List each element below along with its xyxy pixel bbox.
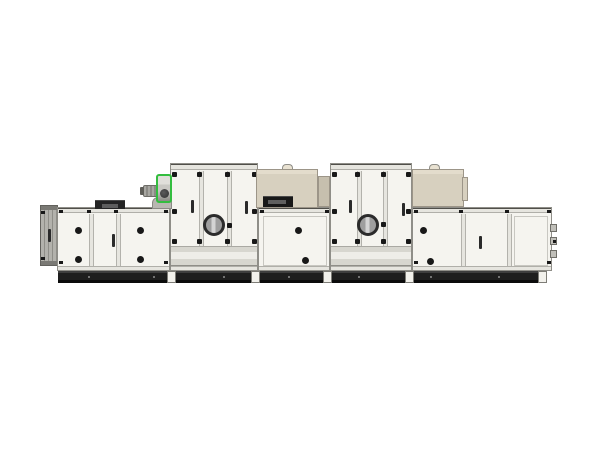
base-bolt (88, 276, 90, 278)
section-5-top-frame (413, 208, 551, 213)
door-knob (295, 227, 302, 234)
louver-top-flange (41, 206, 57, 210)
fan-motor-end-cap (140, 187, 144, 195)
porthole-side-bracket (227, 223, 232, 228)
door-handle (402, 203, 405, 216)
corner-bracket (172, 209, 177, 214)
door-knob (75, 227, 82, 234)
hood-vent-slot (102, 204, 118, 208)
beige-control-box-left (256, 169, 318, 208)
base-bottom-edge (58, 280, 544, 283)
corner-bracket (197, 239, 202, 244)
exhaust-hood (95, 200, 125, 209)
corner-bracket (172, 239, 177, 244)
corner-bracket (381, 239, 386, 244)
corner-bracket (332, 172, 337, 177)
inspection-porthole (203, 214, 225, 236)
corner-bracket (355, 239, 360, 244)
corner-bracket (406, 239, 411, 244)
door-knob (75, 256, 82, 263)
box-vent-slot-inner (268, 200, 286, 204)
hinge-tab (550, 250, 557, 258)
corner-bracket (406, 209, 411, 214)
corner-bracket (459, 210, 463, 213)
section-4-kick-band (331, 246, 411, 266)
inspection-porthole (357, 214, 379, 236)
corner-bracket (381, 172, 386, 177)
corner-bracket (332, 239, 337, 244)
door-knob (302, 257, 309, 264)
door-handle (479, 236, 482, 249)
hinge-tab (550, 224, 557, 232)
louver-handle (48, 229, 51, 242)
door-panel-outline (514, 216, 548, 266)
corner-bracket (332, 209, 337, 214)
section-3-low-cabinet (258, 207, 330, 271)
corner-bracket (59, 210, 63, 213)
door-frame-post (507, 214, 512, 266)
door-frame-post (89, 214, 94, 266)
section-4-top-frame (331, 164, 411, 170)
door-frame-post (199, 171, 204, 246)
base-support-foot (405, 271, 414, 283)
box-side-tab (462, 177, 468, 201)
door-frame-post (357, 171, 362, 246)
porthole-side-bracket (381, 222, 386, 227)
corner-bracket (547, 210, 551, 213)
corner-bracket (252, 239, 257, 244)
door-knob (137, 256, 144, 263)
base-bolt (288, 276, 290, 278)
section-2-kick-band (171, 246, 257, 266)
base-support-foot (251, 271, 260, 283)
door-panel-outline (263, 216, 327, 266)
section-3-top-frame (259, 208, 329, 213)
door-frame-post (116, 214, 121, 266)
door-handle (112, 234, 115, 247)
section-4-sill (331, 266, 411, 270)
beige-control-box-right (412, 169, 464, 207)
corner-bracket (355, 172, 360, 177)
corner-bracket (325, 210, 329, 213)
corner-bracket (225, 172, 230, 177)
section-2-tall-cabinet (170, 163, 258, 271)
door-knob (427, 258, 434, 265)
corner-bracket (252, 209, 257, 214)
corner-bracket (414, 261, 418, 264)
section-4-tall-cabinet (330, 163, 412, 271)
louver-bottom-flange (41, 261, 57, 265)
section-1-low-cabinet (57, 207, 170, 271)
hinge-tab-lock (550, 237, 557, 245)
louver-end-cap (40, 205, 58, 266)
base-support-foot (323, 271, 332, 283)
air-handling-unit (0, 0, 600, 450)
door-handle (349, 200, 352, 213)
corner-bracket (59, 261, 63, 264)
corner-bracket (260, 210, 264, 213)
base-bolt (223, 276, 225, 278)
door-frame-post (383, 171, 388, 246)
base-top-edge (58, 271, 544, 273)
box-side-step (318, 176, 330, 207)
door-handle (191, 200, 194, 213)
section-1-sill (58, 266, 169, 270)
corner-bracket (87, 210, 91, 213)
door-frame-post (227, 171, 232, 246)
section-2-top-frame (171, 164, 257, 170)
base-support-foot (538, 271, 547, 283)
corner-bracket (406, 172, 411, 177)
door-frame-post (461, 214, 466, 266)
machine-base-rail (58, 271, 544, 283)
section-3-sill (259, 266, 329, 270)
base-bolt (430, 276, 432, 278)
corner-bracket (164, 261, 168, 264)
product-image-canvas (0, 0, 600, 450)
corner-bracket (41, 211, 45, 214)
base-bolt (498, 276, 500, 278)
door-handle (245, 201, 248, 214)
corner-bracket (414, 210, 418, 213)
corner-bracket (164, 210, 168, 213)
section-5-low-cabinet (412, 207, 552, 271)
base-support-foot (167, 271, 176, 283)
corner-bracket (225, 239, 230, 244)
corner-bracket (114, 210, 118, 213)
box-vent-slot (263, 196, 293, 207)
door-knob (137, 227, 144, 234)
corner-bracket (505, 210, 509, 213)
base-bolt (153, 276, 155, 278)
corner-bracket (197, 172, 202, 177)
fan-scroll-housing (156, 174, 172, 203)
base-bolt (358, 276, 360, 278)
door-knob (420, 227, 427, 234)
corner-bracket (172, 172, 177, 177)
corner-bracket (41, 257, 45, 260)
lock-dot (553, 240, 556, 243)
section-2-sill (171, 266, 257, 270)
fan-scroll-inlet (160, 189, 169, 198)
section-5-sill (413, 266, 551, 270)
corner-bracket (547, 261, 551, 264)
